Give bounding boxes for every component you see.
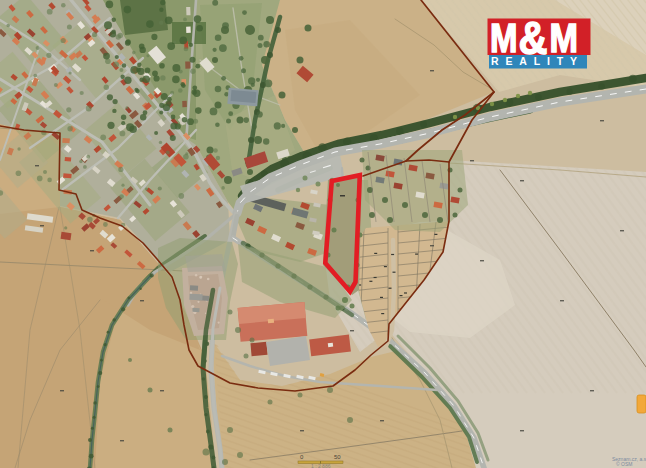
svg-text:1 : 2 886: 1 : 2 886 (311, 463, 331, 468)
svg-text:50: 50 (334, 454, 341, 460)
svg-text:© OSM: © OSM (616, 461, 632, 467)
